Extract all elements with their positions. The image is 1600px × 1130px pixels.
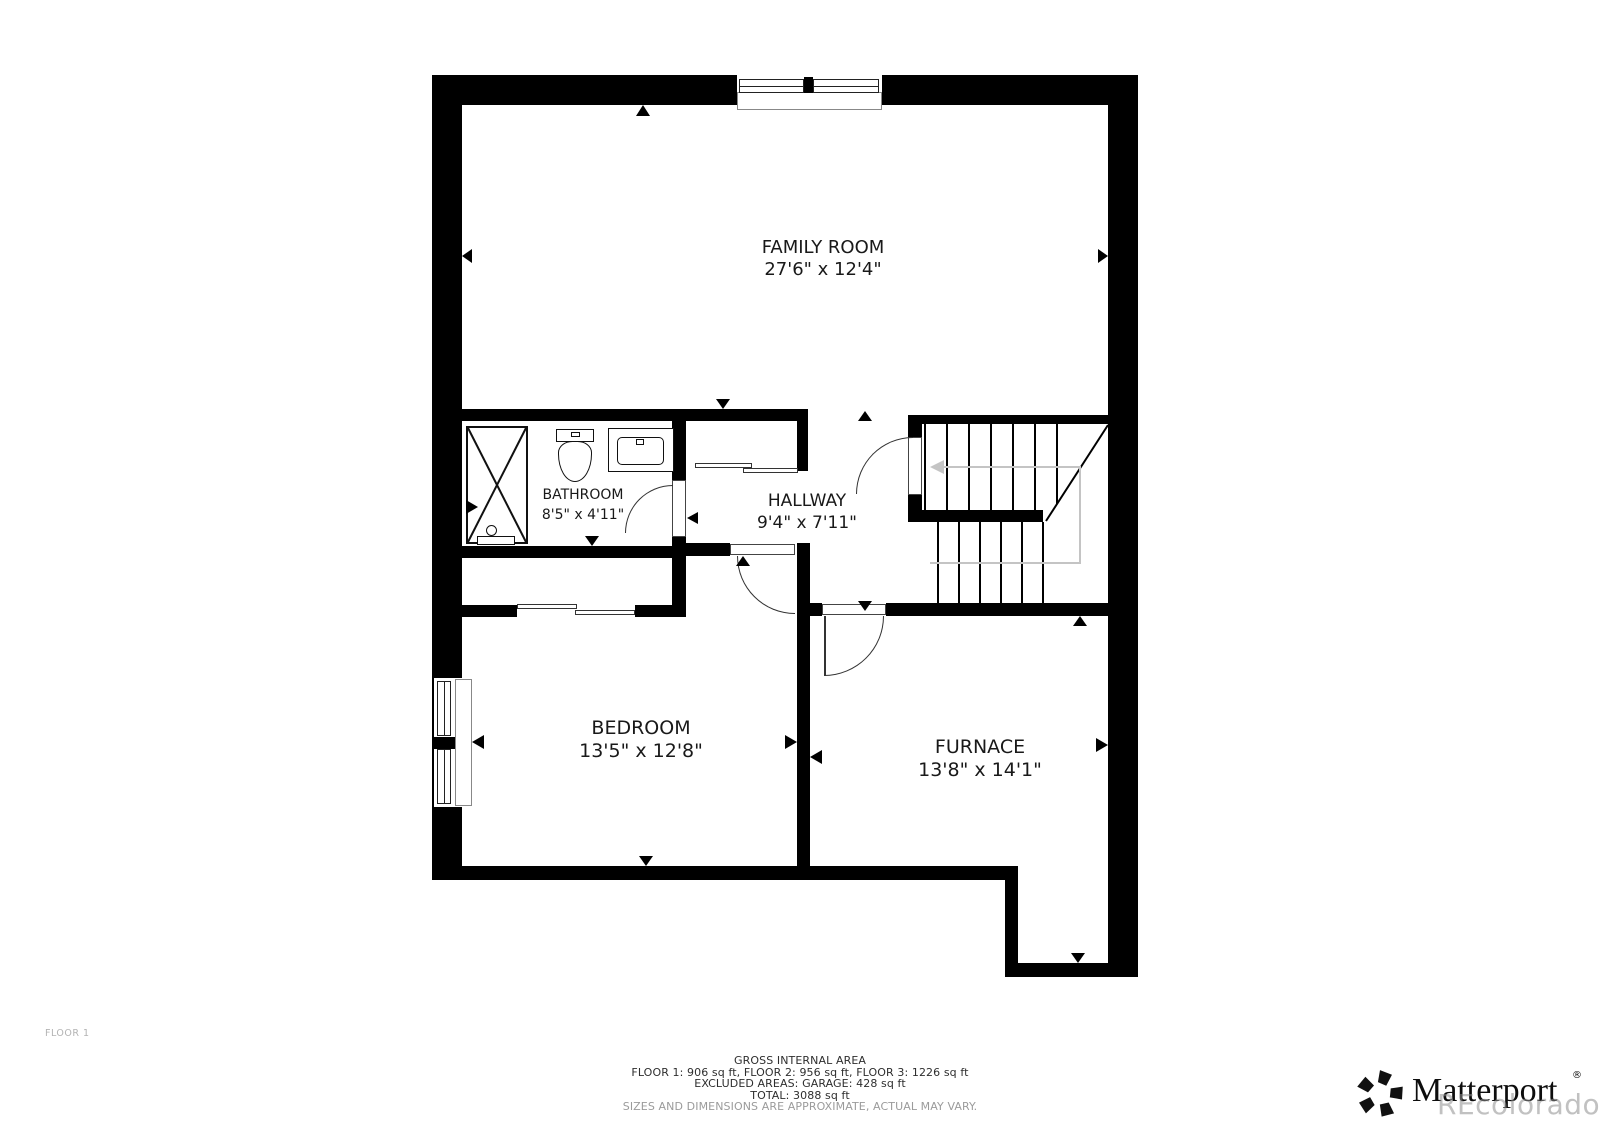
dimension-arrow bbox=[472, 735, 484, 749]
dimension-arrow bbox=[858, 411, 872, 421]
dimension-arrow bbox=[736, 556, 750, 566]
dimension-arrow bbox=[466, 500, 478, 514]
recolorado-watermark: REcolorado bbox=[1437, 1088, 1600, 1121]
dimension-arrow bbox=[636, 105, 650, 116]
dimension-arrow bbox=[858, 601, 872, 611]
dimension-arrow bbox=[785, 735, 797, 749]
stair-cut-line bbox=[1046, 425, 1108, 521]
dimension-arrows bbox=[462, 105, 1108, 963]
room-dimensions: 27'6" x 12'4" bbox=[762, 259, 885, 281]
dimension-arrow bbox=[1098, 249, 1108, 263]
room-label-furnace: FURNACE 13'8" x 14'1" bbox=[918, 736, 1042, 782]
dimension-arrow bbox=[1073, 616, 1087, 626]
dimension-arrow bbox=[1096, 738, 1108, 752]
shower-x-icon bbox=[468, 428, 526, 542]
room-label-bathroom: BATHROOM 8'5" x 4'11" bbox=[542, 485, 624, 525]
dimension-arrow bbox=[687, 512, 698, 524]
room-label-hallway: HALLWAY 9'4" x 7'11" bbox=[757, 490, 857, 534]
dimension-arrow bbox=[810, 750, 822, 764]
dimension-arrow bbox=[585, 536, 599, 546]
room-name: BATHROOM bbox=[542, 485, 624, 505]
room-name: BEDROOM bbox=[579, 717, 703, 740]
dimension-arrow bbox=[462, 249, 472, 263]
dimension-arrow bbox=[716, 399, 730, 409]
dimension-arrow bbox=[639, 856, 653, 866]
room-label-bedroom: BEDROOM 13'5" x 12'8" bbox=[579, 717, 703, 763]
stair-direction-arrow bbox=[930, 460, 944, 474]
room-name: FURNACE bbox=[918, 736, 1042, 759]
floor-plan-page: FAMILY ROOM 27'6" x 12'4" BATHROOM 8'5" … bbox=[0, 0, 1600, 1130]
room-dimensions: 13'8" x 14'1" bbox=[918, 759, 1042, 782]
plan-annotations bbox=[0, 0, 1600, 1130]
room-name: HALLWAY bbox=[757, 490, 857, 512]
room-label-family-room: FAMILY ROOM 27'6" x 12'4" bbox=[762, 237, 885, 281]
room-dimensions: 9'4" x 7'11" bbox=[757, 512, 857, 534]
room-dimensions: 8'5" x 4'11" bbox=[542, 505, 624, 525]
room-name: FAMILY ROOM bbox=[762, 237, 885, 259]
dimension-arrow bbox=[1071, 953, 1085, 963]
room-dimensions: 13'5" x 12'8" bbox=[579, 740, 703, 763]
